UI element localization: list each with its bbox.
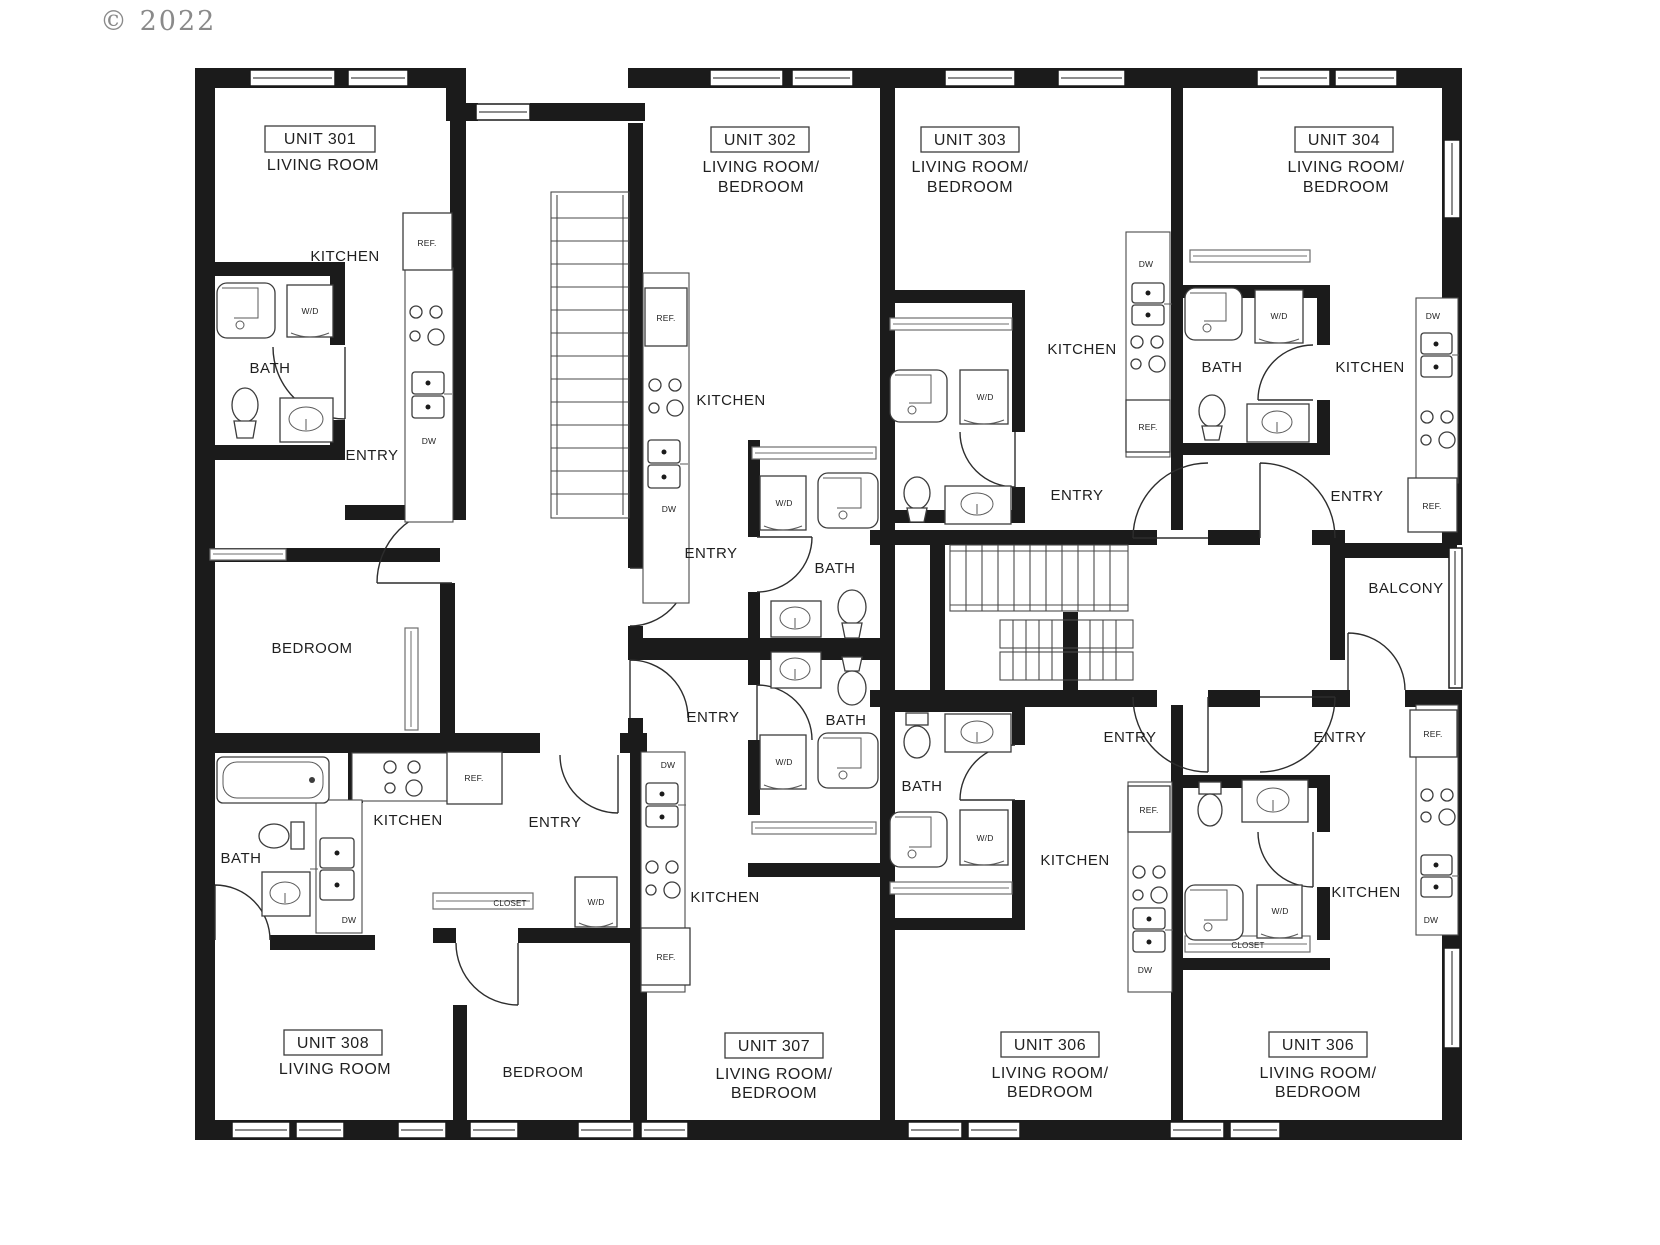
label-closet-306R: CLOSET [1231, 941, 1264, 950]
counter [1416, 298, 1458, 483]
label-kitchen-308: KITCHEN [373, 812, 442, 829]
label-kitchen-303: KITCHEN [1047, 341, 1116, 358]
wall-segment [440, 583, 455, 733]
vanity-sink-icon [771, 601, 821, 637]
label-wd-306L: W/D [976, 833, 993, 843]
unit-306R-room1: LIVING ROOM/ [1259, 1065, 1376, 1082]
toilet-icon [1198, 782, 1222, 826]
label-entry-306R: ENTRY [1313, 729, 1366, 746]
unit-301-label: UNIT 301 [284, 131, 356, 148]
wall-segment [930, 545, 945, 690]
label-entry-304: ENTRY [1330, 488, 1383, 505]
wall-segment [433, 928, 456, 943]
label-entry-303: ENTRY [1050, 487, 1103, 504]
vanity-sink-icon [1242, 780, 1308, 822]
label-entry-307: ENTRY [686, 709, 739, 726]
toilet-icon [259, 822, 304, 849]
unit-302-room1: LIVING ROOM/ [702, 159, 819, 176]
label-dw-303: DW [1139, 259, 1154, 269]
vanity-sink-icon [771, 652, 821, 688]
unit-307-room2: BEDROOM [731, 1085, 817, 1102]
wall-segment [195, 445, 345, 460]
shower-icon [217, 283, 275, 338]
walls [195, 68, 1462, 1140]
toilet-icon [838, 590, 866, 638]
label-bedroom-301: BEDROOM [271, 640, 352, 657]
stairs-left [551, 192, 629, 518]
wall-segment [1312, 690, 1345, 707]
label-kitchen-304: KITCHEN [1335, 359, 1404, 376]
stair-treads [551, 218, 629, 494]
label-ref-308: REF. [464, 773, 483, 783]
wall-segment [895, 700, 1025, 712]
wall-segment [1330, 545, 1345, 660]
door-arc-unit306R-bath [1258, 832, 1313, 887]
label-wd-304: W/D [1270, 311, 1287, 321]
stairs-center [950, 545, 1133, 680]
shower-icon [890, 370, 947, 422]
label-bath-301: BATH [250, 360, 291, 377]
toilet-icon [232, 388, 258, 438]
unit-303-room1: LIVING ROOM/ [911, 159, 1028, 176]
wall-segment [870, 530, 1157, 545]
label-ref-307: REF. [656, 952, 675, 962]
unit-308-label: UNIT 308 [297, 1035, 369, 1052]
wall-segment [620, 733, 647, 753]
unit-304-label: UNIT 304 [1308, 132, 1380, 149]
wall-segment [195, 733, 540, 753]
floor-plan-canvas: © 2022 UNIT 301 LIVING ROOM UNIT 302 LIV… [0, 0, 1660, 1245]
unit-308-room: LIVING ROOM [279, 1061, 391, 1078]
vanity-sink-icon [280, 398, 333, 442]
wall-segment [1012, 290, 1025, 432]
label-dw-301: DW [422, 436, 437, 446]
toilet-icon [904, 477, 930, 522]
wall-segment [1208, 530, 1260, 545]
label-wd-301: W/D [301, 306, 318, 316]
label-bath-307: BATH [826, 712, 867, 729]
label-entry-308: ENTRY [528, 814, 581, 831]
toilet-icon [1199, 395, 1225, 440]
door-arc-unit302-bath [757, 537, 812, 592]
floor-plan-drawing: © 2022 UNIT 301 LIVING ROOM UNIT 302 LIV… [0, 0, 1660, 1245]
wall-segment [1330, 543, 1457, 558]
unit-303-label: UNIT 303 [934, 132, 1006, 149]
label-wd-307: W/D [775, 757, 792, 767]
wall-segment [195, 68, 215, 1140]
unit-304-room1: LIVING ROOM/ [1287, 159, 1404, 176]
toilet-icon [904, 713, 930, 758]
label-ref-303: REF. [1138, 422, 1157, 432]
label-dw-304: DW [1426, 311, 1441, 321]
door-arc-unit306L-bath [960, 745, 1015, 800]
vanity-sink-icon [945, 486, 1011, 524]
label-dw-308: DW [342, 915, 357, 925]
label-wd-303: W/D [976, 392, 993, 402]
door-arc-unit307-entry [630, 660, 688, 718]
counter [405, 268, 453, 522]
vanity-sink-icon [262, 872, 310, 916]
bathtub [217, 757, 329, 803]
unit-301-room: LIVING ROOM [267, 157, 379, 174]
unit-303-room2: BEDROOM [927, 179, 1013, 196]
wall-segment [1317, 887, 1330, 940]
door-arc-unit308-entry [560, 755, 618, 813]
wall-segment [628, 123, 643, 568]
unit-306R-label: UNIT 306 [1282, 1037, 1354, 1054]
label-kitchen-301: KITCHEN [310, 248, 379, 265]
label-ref-306L: REF. [1139, 805, 1158, 815]
door-arc-unit304-hall [1260, 463, 1335, 538]
wall-segment [748, 740, 760, 815]
wall-segment [1063, 612, 1078, 690]
label-entry-302: ENTRY [684, 545, 737, 562]
wall-segment [1183, 958, 1330, 970]
wall-segment [518, 928, 647, 943]
door-arc-balcony [1348, 633, 1405, 690]
wall-segment [1012, 800, 1025, 930]
wall-segment [453, 1005, 467, 1120]
label-bath-302: BATH [815, 560, 856, 577]
label-kitchen-302: KITCHEN [696, 392, 765, 409]
unit-302-label: UNIT 302 [724, 132, 796, 149]
wall-segment [895, 290, 1025, 303]
label-wd-306R: W/D [1271, 906, 1288, 916]
label-dw-307: DW [661, 760, 676, 770]
wall-segment [195, 935, 215, 950]
label-kitchen-307: KITCHEN [690, 889, 759, 906]
unit-307-room1: LIVING ROOM/ [715, 1066, 832, 1083]
label-bath-306L: BATH [902, 778, 943, 795]
wall-segment [1312, 530, 1345, 545]
label-entry-306L: ENTRY [1103, 729, 1156, 746]
label-dw-306L: DW [1138, 965, 1153, 975]
vanity-sink-icon [945, 714, 1011, 752]
label-kitchen-306L: KITCHEN [1040, 852, 1109, 869]
label-entry-301: ENTRY [345, 447, 398, 464]
unit-307-label: UNIT 307 [738, 1038, 810, 1055]
toilet-icon [838, 657, 866, 705]
unit-306R-room2: BEDROOM [1275, 1084, 1361, 1101]
label-bath-308: BATH [221, 850, 262, 867]
windows [210, 70, 1462, 1138]
label-ref-306R: REF. [1423, 729, 1442, 739]
unit-304-room2: BEDROOM [1303, 179, 1389, 196]
label-bath-304: BATH [1202, 359, 1243, 376]
wall-segment [748, 863, 893, 877]
label-wd-308: W/D [587, 897, 604, 907]
door-arc-unit304-bath [1258, 345, 1313, 400]
label-bedroom-308: BEDROOM [502, 1064, 583, 1081]
label-ref-301: REF. [417, 238, 436, 248]
shower-icon [818, 733, 878, 788]
wall-segment [628, 718, 643, 733]
wall-segment [1208, 690, 1260, 707]
label-balcony: BALCONY [1368, 580, 1443, 597]
wall-segment [880, 88, 895, 1120]
label-ref-302: REF. [656, 313, 675, 323]
stair-treads [966, 545, 1110, 611]
vanity-sink-icon [1247, 404, 1309, 442]
wall-segment [1171, 88, 1183, 530]
wall-segment [895, 918, 1025, 930]
door-arc-unit308-bedroom [456, 943, 518, 1005]
wall-segment [270, 935, 375, 950]
unit-306L-room1: LIVING ROOM/ [991, 1065, 1108, 1082]
shower-icon [1185, 885, 1243, 940]
label-wd-302: W/D [775, 498, 792, 508]
label-dw-306R: DW [1424, 915, 1439, 925]
label-ref-304: REF. [1422, 501, 1441, 511]
label-kitchen-306R: KITCHEN [1331, 884, 1400, 901]
unit-302-room2: BEDROOM [718, 179, 804, 196]
label-closet-308: CLOSET [493, 899, 526, 908]
shower-icon [1185, 288, 1242, 340]
label-dw-302: DW [662, 504, 677, 514]
wall-segment [1345, 690, 1350, 707]
wall-segment [530, 103, 645, 121]
shower-icon [890, 812, 947, 867]
bathtub-icon [217, 757, 329, 803]
copyright-watermark: © 2022 [100, 6, 216, 37]
shower-icon [818, 473, 878, 528]
door-arc-unit303-bath [960, 432, 1015, 487]
door-arc-unit303-hall [1133, 463, 1208, 538]
wall-segment [1183, 443, 1330, 455]
unit-306L-label: UNIT 306 [1014, 1037, 1086, 1054]
door-arc-unit307-bath [757, 685, 812, 740]
unit-306L-room2: BEDROOM [1007, 1084, 1093, 1101]
wall-segment [748, 660, 760, 685]
